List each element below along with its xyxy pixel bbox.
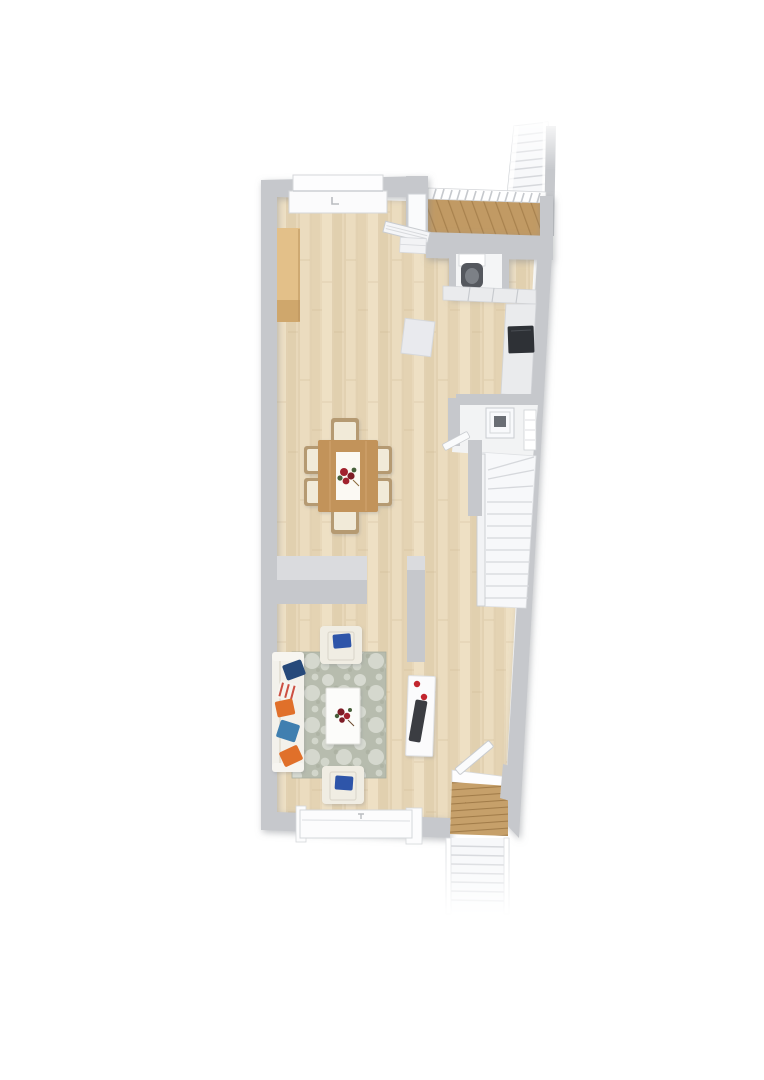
front-window (296, 806, 422, 844)
rear-window-outer-ledge (293, 175, 383, 191)
entry-deck (428, 188, 546, 240)
floor-plan-canvas (0, 0, 764, 1080)
floor-plan (0, 0, 764, 1080)
front-window-sill (300, 810, 412, 838)
storage-box (401, 318, 435, 356)
wc-niche (456, 254, 502, 290)
hallway-wall-stub-top (407, 556, 425, 570)
landing-north-wall (456, 394, 538, 405)
sofa (272, 652, 306, 772)
red-decor-1 (414, 681, 420, 687)
wooden-steps (450, 782, 508, 836)
wc-toilet-bowl (465, 268, 479, 284)
stair-west-wall-stub (468, 440, 482, 516)
interior-staircase (468, 440, 536, 608)
hallway-wall-stub (407, 556, 425, 662)
rear-window-sill (289, 191, 387, 213)
tv-stand (406, 676, 436, 757)
stair-landing-room (442, 394, 538, 458)
radiator (524, 410, 536, 450)
lower-exterior-staircase (446, 838, 510, 914)
lower-stairs-body (446, 838, 510, 914)
side-counter-base (277, 300, 300, 322)
armchair-south-pillow (335, 775, 354, 790)
armchair-north (320, 626, 362, 664)
side-counter-top (277, 228, 300, 302)
lower-stairs-stringer-left (446, 838, 451, 914)
armchair-north-pillow (332, 633, 351, 649)
side-counter (277, 228, 300, 322)
laundry-basin (486, 408, 514, 438)
lower-stairs-stringer-right (504, 838, 509, 914)
armchair-south (322, 766, 364, 804)
living-partition-wall-top (277, 556, 367, 580)
entry-steps (400, 237, 427, 253)
coffee-table (326, 688, 360, 744)
entry-door (408, 194, 426, 232)
deck-side-wall (540, 196, 553, 240)
rear-window (289, 175, 387, 213)
red-decor-2 (421, 694, 427, 700)
